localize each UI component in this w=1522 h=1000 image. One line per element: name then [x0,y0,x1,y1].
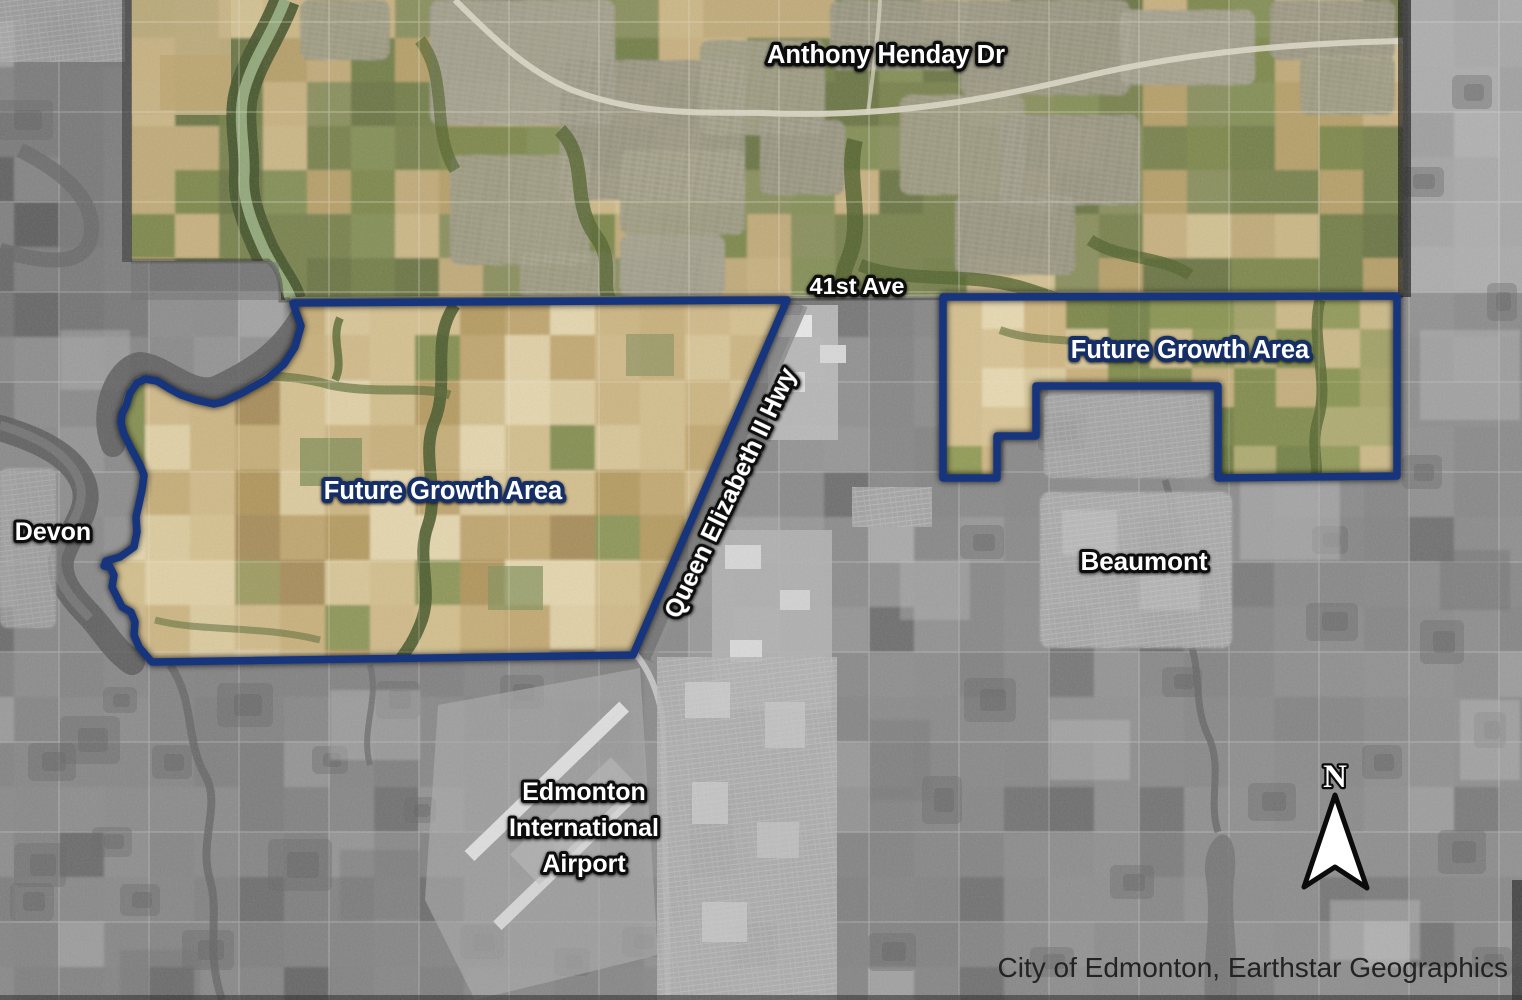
svg-text:Future Growth Area: Future Growth Area [1071,336,1310,364]
svg-text:Edmonton: Edmonton [522,778,646,806]
svg-text:N: N [1323,759,1347,795]
svg-text:International: International [509,814,659,842]
svg-text:City of Edmonton, Earthstar Ge: City of Edmonton, Earthstar Geographics [998,952,1508,983]
svg-text:41st Ave: 41st Ave [810,273,905,299]
svg-text:Airport: Airport [542,850,626,878]
svg-text:Devon: Devon [15,518,91,546]
svg-text:Anthony Henday Dr: Anthony Henday Dr [767,41,1005,69]
svg-text:Beaumont: Beaumont [1080,546,1207,576]
svg-text:Future Growth Area: Future Growth Area [324,477,563,505]
